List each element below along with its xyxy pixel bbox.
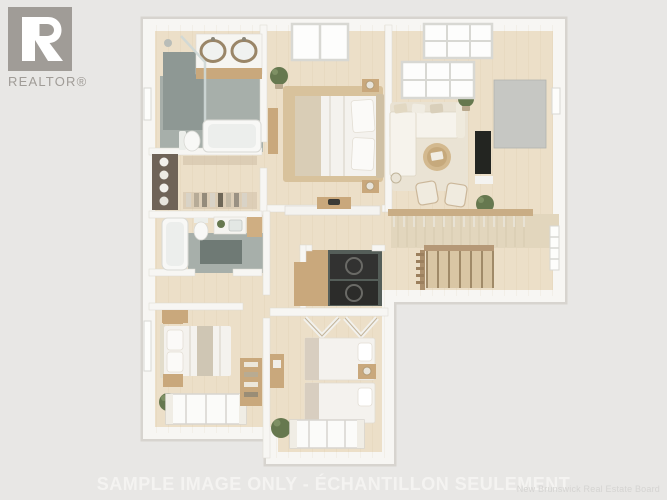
floor-lamp [391,173,401,183]
nightstand-2a [163,311,183,324]
bench-ladder [268,108,278,154]
vanity-2 [214,217,246,234]
hall-console-table [317,197,351,209]
staircase [416,245,494,290]
shared-nightstand [358,364,376,379]
toilet-2 [194,218,208,240]
coffee-table [423,143,451,171]
hall-cabinet [294,262,307,306]
wood-accent [247,217,262,237]
bed-2 [160,324,231,378]
twin-bed-2 [305,383,375,423]
closet-top-shelf [183,156,257,165]
toilet [179,131,200,151]
nightstand-lamp-top [362,79,379,92]
skylight-master [292,24,348,60]
master-bed [295,94,384,178]
closet-shelves-bedroom2 [240,358,262,406]
floor-plan [0,0,667,500]
bedroom2-south-window [166,394,246,424]
nightstand-lamp-bottom [362,180,379,193]
bathtub [203,120,261,152]
real-estate-board-credit: New Brunswick Real Estate Board [517,484,660,494]
clothes-rail [183,192,257,209]
tv [475,131,491,174]
desk-bedroom3 [270,354,284,388]
nightstand-2b [163,374,183,387]
skylight-living-1 [424,24,492,58]
screenshot-canvas: REALTOR® [0,0,667,500]
stairwell [416,245,494,290]
bedroom3-south-window [290,420,364,448]
skylight-living-2 [402,62,474,98]
stair-top-rail [424,245,494,251]
plant-bedroom3 [271,418,291,438]
bathtub-2 [162,218,188,270]
